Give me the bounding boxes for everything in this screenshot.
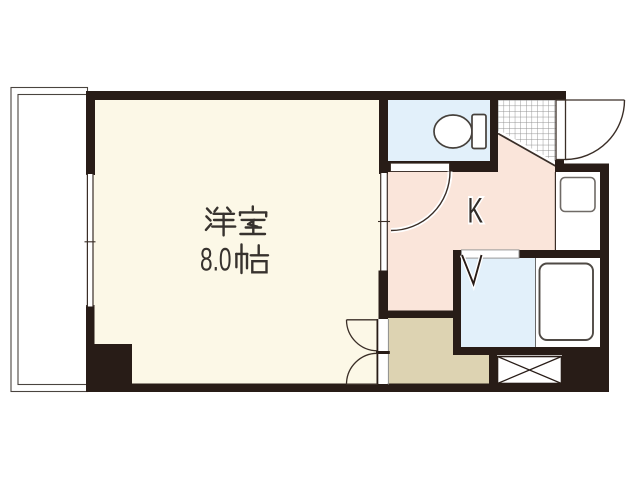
svg-text:K: K xyxy=(468,192,484,231)
svg-text:8.0: 8.0 xyxy=(200,242,232,278)
